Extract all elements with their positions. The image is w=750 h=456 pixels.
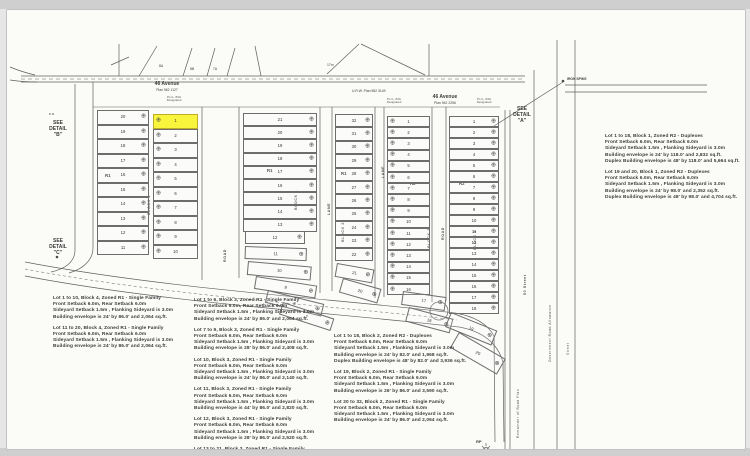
lot-number: 10 — [248, 265, 310, 275]
lot-number: 30 — [336, 145, 372, 150]
lot-strip: ⊕8 — [449, 193, 499, 204]
lot-strip: ⊕24 — [335, 221, 373, 234]
lot-number: 27 — [336, 185, 372, 190]
lot-strip: ⊕17 — [243, 166, 317, 179]
lot-number: 12 — [246, 235, 304, 240]
lot-strip: ⊕31 — [335, 127, 373, 140]
lot-number: 26 — [336, 198, 372, 203]
scanned-plat-document: { "page": { "background": "#e6e6e6", "sh… — [0, 0, 750, 456]
lot-strip: ⊕6 — [387, 172, 430, 183]
lot-number: 3 — [450, 141, 498, 146]
lot-number: 15 — [244, 196, 316, 201]
lot-strip: ⊕4 — [387, 150, 430, 161]
lot-strip: ⊕18 — [449, 303, 499, 314]
lot-strip: ⊕15 — [243, 192, 317, 205]
lot-number: 9 — [450, 207, 498, 212]
lot-number: 7 — [450, 185, 498, 190]
remainder-road-plan-label: Remainder of Road Plan — [516, 389, 520, 438]
lot-strip: ⊕8 — [387, 194, 430, 205]
lot-number: 10 — [154, 249, 197, 254]
lot-strip: ⊕15 — [97, 183, 149, 198]
parcel-label-7a: 7A — [213, 67, 217, 71]
lot-number: 4 — [450, 152, 498, 157]
lot-number: 29 — [336, 158, 372, 163]
lot-number: 4 — [388, 152, 429, 157]
lot-number: 24 — [336, 225, 372, 230]
lot-number: 2 — [154, 133, 197, 138]
road-label-2: ROAD — [441, 227, 445, 240]
lot-number: 5 — [450, 163, 498, 168]
lot-strip: ⊕12 — [449, 237, 499, 248]
lot-strip: ⊕7 — [387, 183, 430, 194]
lot-strip: ⊕5 — [153, 172, 198, 187]
lot-strip: ⊕20 — [243, 126, 317, 139]
lot-number: 1 — [388, 119, 429, 124]
setback-note-line: Building envelope is 24' by 86.0' and 2,… — [334, 418, 499, 424]
see-detail-a-line3: "A" — [506, 118, 538, 124]
lot-number: 17 — [98, 158, 148, 163]
lot-strip: ⊕12 — [97, 226, 149, 241]
lot-strip: ⊕12 — [387, 239, 430, 250]
lot-number: 18 — [98, 143, 148, 148]
lot-number: 13 — [450, 251, 498, 256]
lot-strip: ⊕25 — [335, 208, 373, 221]
lot-number: 13 — [244, 222, 316, 227]
lot-strip: ⊕11 — [449, 226, 499, 237]
setback-note-line: Duplex Building envelope is 48' by 82.0'… — [334, 359, 499, 365]
lot-strip: ⊕11 — [387, 228, 430, 239]
lot-number: 16 — [450, 284, 498, 289]
lot-number: 22 — [336, 252, 372, 257]
lot-strip: ⊕7 — [153, 201, 198, 216]
lot-number: 7 — [388, 186, 429, 191]
lane-label-1: LANE — [327, 203, 331, 215]
lot-number: 25 — [336, 212, 372, 217]
lot-number: 14 — [450, 262, 498, 267]
lot-number: 11 — [98, 245, 148, 250]
lot-number: 11 — [388, 231, 429, 236]
lot-number: 10 — [388, 219, 429, 224]
block2-notes: Lot 1 to 18, Block 2, Zoned R2 - Duplexe… — [334, 334, 499, 430]
lot-strip: ⊕32 — [335, 114, 373, 127]
lot-strip: ⊕16 — [243, 179, 317, 192]
lot-number: 15 — [388, 275, 429, 280]
lot-number: 15 — [98, 187, 148, 192]
street-label-46-avenue-west: 46 Avenue — [132, 81, 202, 87]
lot-number: 28 — [336, 171, 372, 176]
lot-strip: ⊕1 — [449, 116, 499, 127]
block1-notes: Lot 1 to 18, Block 1, Zoned R2 - Duplexe… — [605, 134, 746, 206]
lot-number: 10 — [450, 218, 498, 223]
lot-strip: ⊕2 — [153, 129, 198, 144]
lot-strip: ⊕3 — [153, 143, 198, 158]
lot-number: 20 — [244, 130, 316, 135]
lot-strip: ⊕18 — [243, 153, 317, 166]
lot-strip: ⊕16 — [449, 281, 499, 292]
lot-strip: ⊕3 — [449, 138, 499, 149]
see-detail-c: SEE DETAIL "C" — [41, 238, 75, 256]
lot-strip: ⊕20 — [97, 110, 149, 125]
lot-number: 18 — [244, 156, 316, 161]
lot-strip: ⊕5 — [387, 161, 430, 172]
setback-note-line: Sideyard Setback 1.5m , Flanking Sideyar… — [605, 182, 746, 188]
lot-number: 8 — [154, 220, 197, 225]
lot-strip: ⊕3 — [387, 138, 430, 149]
plan-sheet: 46 Avenue Plan 962 1127 46 Avenue Plan 9… — [6, 9, 746, 450]
lot-number: 19 — [244, 143, 316, 148]
lot-strip: ⊕18 — [97, 139, 149, 154]
lot-strip: ⊕23 — [335, 235, 373, 248]
highlighted-lot: ⊕1 — [153, 114, 198, 129]
lot-number: 9 — [388, 208, 429, 213]
lot-number: 13 — [388, 253, 429, 258]
pul-label-1: P.U.L. 84G Designated — [165, 96, 183, 102]
lot-number: 16 — [244, 183, 316, 188]
lot-strip: ⊕10 — [449, 215, 499, 226]
lot-number: 2 — [450, 130, 498, 135]
lot-number: 31 — [336, 131, 372, 136]
setback-note-paragraph: Lot 1 to 18, Block 1, Zoned R2 - Duplexe… — [605, 134, 746, 165]
lot-number: 15 — [450, 273, 498, 278]
street-label-street: Street — [566, 343, 570, 355]
lot-number: 4 — [154, 162, 197, 167]
lot-strip: ⊕9 — [449, 204, 499, 215]
lot-strip: ⊕2 — [449, 127, 499, 138]
see-detail-c-line3: "C" — [41, 250, 75, 256]
lot-number: 6 — [154, 191, 197, 196]
setback-note-line: Building envelope is 24' by 86.0' and 2,… — [194, 317, 359, 323]
lot-strip: ⊕19 — [243, 139, 317, 152]
lot-number: 12 — [388, 242, 429, 247]
lot-strip: ⊕11 — [97, 241, 149, 256]
lot-strip: ⊕13 — [387, 250, 430, 261]
lot-number: 6 — [450, 174, 498, 179]
lot-number: 12 — [450, 240, 498, 245]
lot-strip: ⊕7 — [449, 182, 499, 193]
lot-strip: ⊕14 — [387, 262, 430, 273]
parcel-label-8a: 8A — [159, 64, 163, 68]
lot-strip: ⊕9 — [387, 206, 430, 217]
lot-number: 20 — [98, 114, 148, 119]
lot-number: 6 — [388, 175, 429, 180]
lot-strip: ⊕26 — [335, 194, 373, 207]
lot-strip: ⊕16 — [97, 168, 149, 183]
lot-number: 13 — [98, 216, 148, 221]
lot-strip: ⊕5 — [449, 160, 499, 171]
lot-number: 5 — [154, 176, 197, 181]
road-label-1: ROAD — [223, 249, 227, 262]
lot-number: 8 — [388, 197, 429, 202]
lot-strip: ⊕14 — [97, 197, 149, 212]
lot-strip: ⊕29 — [335, 154, 373, 167]
setback-note-line: Duplex Building envelope is 48' by 98.0'… — [605, 195, 746, 201]
lot-number: 2 — [388, 130, 429, 135]
setback-note-paragraph: Lot 1 to 6, Block 3, Zoned R1 - Single F… — [194, 298, 359, 323]
urw-plan-label: U.R.W. Plan 982 3149 — [352, 89, 386, 93]
lot-strip: ⊕4 — [153, 158, 198, 173]
lot-strip: ⊕15 — [449, 270, 499, 281]
lot-strip: ⊕22 — [335, 248, 373, 261]
plan-number-east: Plan 942 2256 — [415, 101, 475, 105]
lot-strip: ⊕6 — [449, 171, 499, 182]
street-label-50-street: 50 Street — [523, 274, 527, 295]
lot-number: 32 — [336, 118, 372, 123]
lot-number: 17 — [450, 295, 498, 300]
parcel-label-8b: 8B — [190, 67, 194, 71]
lot-number: 16 — [98, 172, 148, 177]
see-detail-b: SEE DETAIL "B" — [41, 120, 75, 138]
lot-number: 12 — [98, 230, 148, 235]
lot-number: 11 — [246, 250, 306, 257]
setback-note-line: Building envelope is 28' by 86.0' and 2,… — [194, 436, 359, 442]
lot-number: 9 — [154, 234, 197, 239]
irregular-lot: ⊕12 — [245, 231, 305, 244]
irregular-lot: ⊕11 — [245, 246, 307, 261]
top-gray-band — [0, 0, 750, 9]
lane-label-2: LANE — [381, 166, 385, 178]
lot-number: 3 — [388, 141, 429, 146]
lot-number: 8 — [450, 196, 498, 201]
plan-number-west: Plan 962 1127 — [132, 88, 202, 92]
rp-monument-label: RP — [476, 439, 482, 444]
lot-number: 21 — [244, 117, 316, 122]
iron-spike-marker-label: IRON SPIKE — [567, 77, 587, 81]
lot-number: 17 — [403, 295, 445, 306]
lot-number: 11 — [450, 229, 498, 234]
lot-number: 3 — [154, 147, 197, 152]
lot-number: 1 — [154, 118, 197, 123]
lot-strip: ⊕10 — [153, 245, 198, 260]
lot-strip: ⊕1 — [387, 116, 430, 127]
lot-strip: ⊕13 — [243, 219, 317, 232]
setback-note-paragraph: Lot 13 to 21, Block 3, Zoned R1 - Single… — [194, 447, 359, 450]
lot-number: 14 — [388, 264, 429, 269]
pul-label-2: P.U.L. 84G Designated — [385, 98, 403, 104]
setback-note-line: Sideyard Setback 1.5m , Flanking Sideyar… — [605, 146, 746, 152]
lot-strip: ⊕2 — [387, 127, 430, 138]
setback-note-line: Duplex Building envelope is 48' by 118.0… — [605, 159, 746, 165]
setback-note-paragraph: Lot 19 and 20, Block 1, Zoned R2 - Duple… — [605, 170, 746, 201]
lot-strip: ⊕8 — [153, 216, 198, 231]
lot-strip: ⊕19 — [97, 125, 149, 140]
lot-strip: ⊕10 — [387, 217, 430, 228]
lot-strip: ⊕28 — [335, 168, 373, 181]
lot-strip: ⊕17 — [449, 292, 499, 303]
lot-strip: ⊕9 — [153, 230, 198, 245]
lot-number: 14 — [98, 201, 148, 206]
lot-strip: ⊕13 — [449, 248, 499, 259]
see-detail-a: SEE DETAIL "A" — [506, 106, 538, 124]
lot-strip: ⊕15 — [387, 273, 430, 284]
lot-strip: ⊕14 — [243, 205, 317, 218]
lot-number: 19 — [98, 129, 148, 134]
lot-strip: ⊕4 — [449, 149, 499, 160]
lot-number: 18 — [450, 306, 498, 311]
pul-label-3: P.U.L. 84G Designated — [475, 98, 493, 104]
lot-number: 14 — [244, 209, 316, 214]
see-detail-b-line3: "B" — [41, 132, 75, 138]
benchmark-label: B.M. — [45, 113, 59, 116]
lot-number: 21 — [336, 267, 372, 278]
lot-strip: ⊕21 — [243, 113, 317, 126]
lot-strip: ⊕27 — [335, 181, 373, 194]
lot-strip: ⊕13 — [97, 212, 149, 227]
street-label-gov-road-allowance: Government Road Allowance — [548, 304, 552, 362]
lot-number: 17 — [244, 169, 316, 174]
lot-strip: ⊕6 — [153, 187, 198, 202]
lot-strip: ⊕30 — [335, 141, 373, 154]
setback-note-paragraph: Lot 20 to 32, Block 2, Zoned R1 - Single… — [334, 400, 499, 425]
lot-strip: ⊕17 — [97, 154, 149, 169]
lot-number: 1 — [450, 119, 498, 124]
lot-number: 5 — [388, 163, 429, 168]
setback-note-line: Lot 13 to 21, Block 3, Zoned R1 - Single… — [194, 447, 359, 450]
lot-number: 23 — [336, 238, 372, 243]
lot-strip: ⊕14 — [449, 259, 499, 270]
street-label-46-avenue-east: 46 Avenue — [415, 94, 475, 100]
setback-note-paragraph: Lot 19, Block 2, Zoned R1 - Single Famil… — [334, 370, 499, 395]
plat-map: 46 Avenue Plan 962 1127 46 Avenue Plan 9… — [7, 10, 746, 450]
setback-note-line: Building envelope is 26' by 86.0' and 3,… — [334, 389, 499, 395]
setback-note-paragraph: Lot 1 to 18, Block 2, Zoned R2 - Duplexe… — [334, 334, 499, 365]
dim-17m-label: 17m — [327, 63, 334, 67]
lot-number: 7 — [154, 205, 197, 210]
